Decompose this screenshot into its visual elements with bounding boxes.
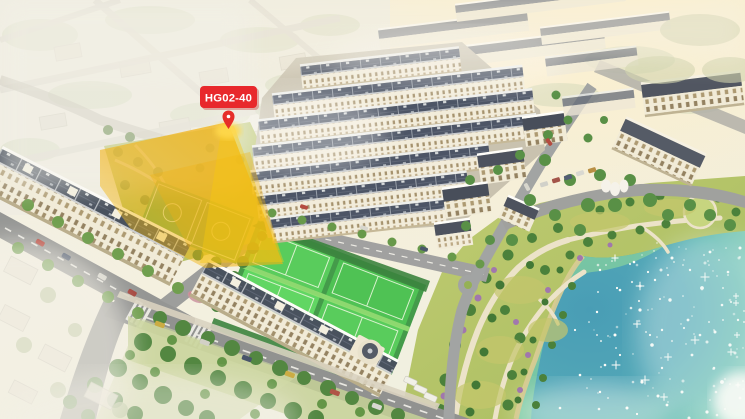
svg-text:HG02-40: HG02-40 — [205, 93, 252, 105]
